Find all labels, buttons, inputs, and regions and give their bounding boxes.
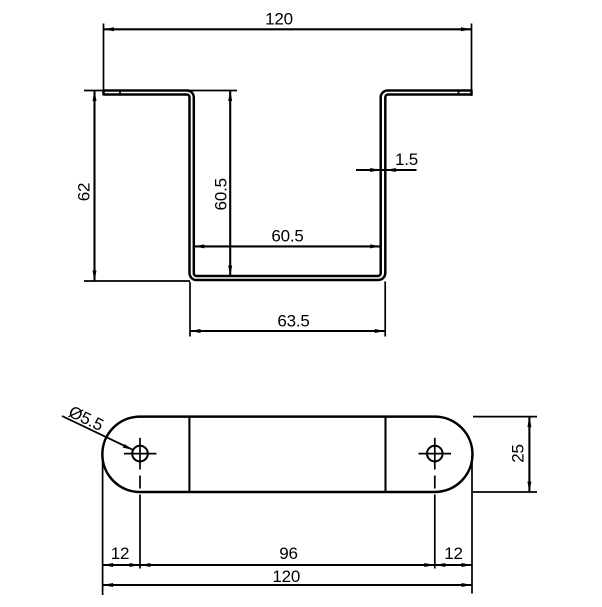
svg-text:120: 120 bbox=[272, 567, 300, 586]
svg-text:60.5: 60.5 bbox=[271, 227, 303, 246]
svg-text:1.5: 1.5 bbox=[395, 150, 418, 169]
svg-text:60.5: 60.5 bbox=[211, 178, 230, 210]
svg-text:120: 120 bbox=[265, 10, 293, 29]
svg-text:62: 62 bbox=[74, 183, 93, 202]
svg-text:96: 96 bbox=[279, 544, 298, 563]
svg-text:63.5: 63.5 bbox=[277, 312, 309, 331]
svg-text:12: 12 bbox=[444, 544, 463, 563]
svg-text:12: 12 bbox=[111, 544, 130, 563]
svg-text:25: 25 bbox=[509, 444, 528, 463]
